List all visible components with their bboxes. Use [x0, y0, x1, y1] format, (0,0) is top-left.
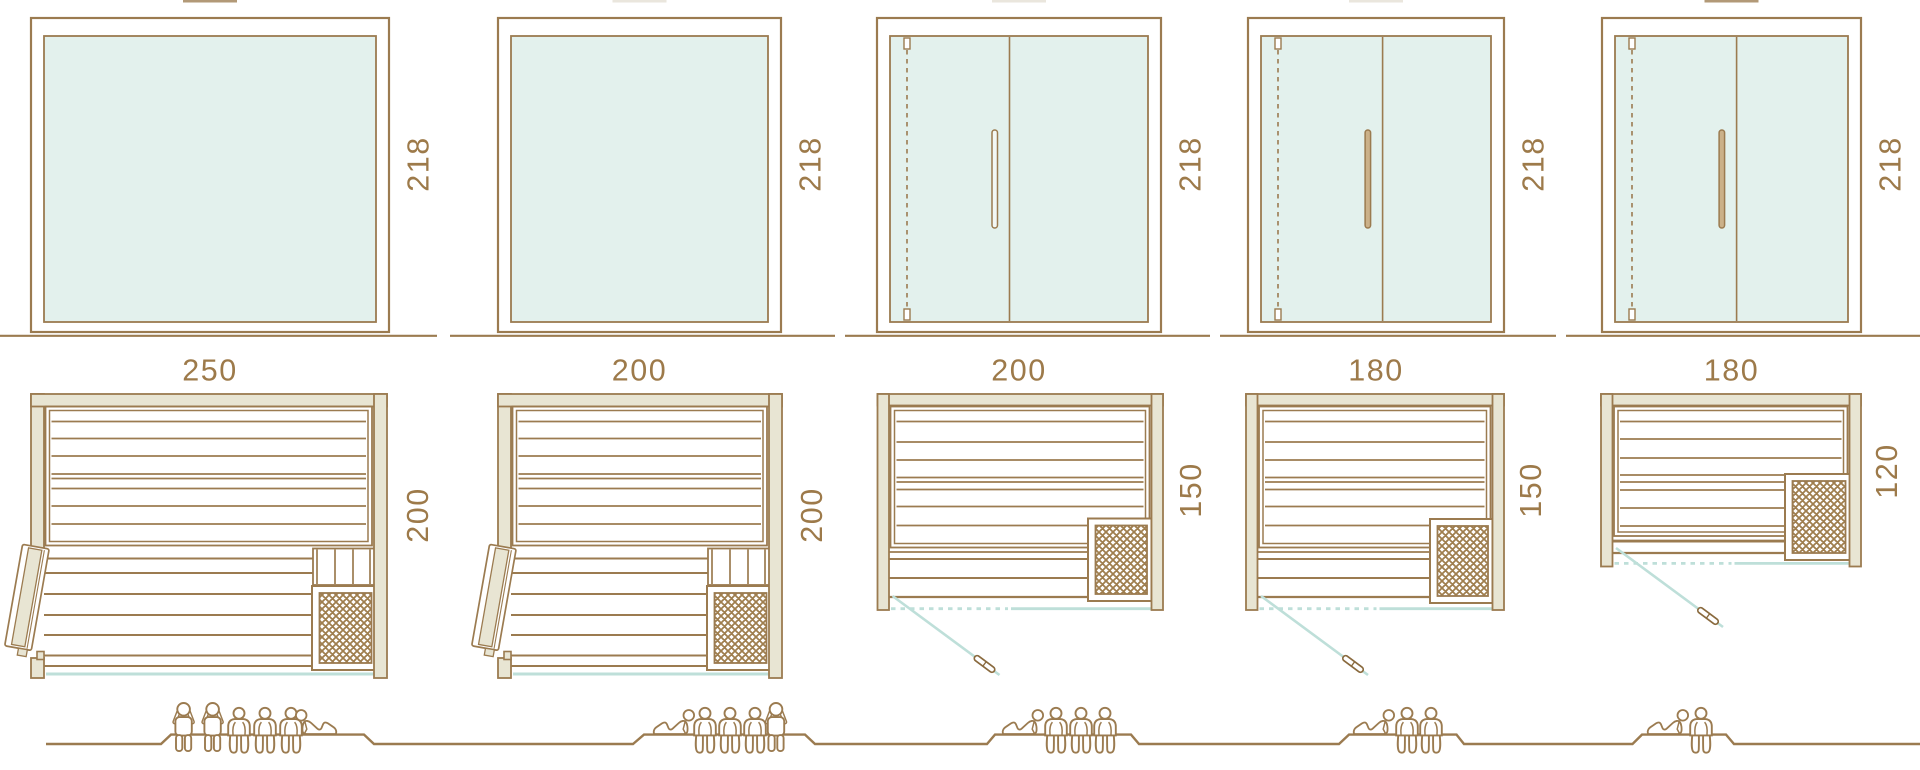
svg-text:218: 218 [794, 136, 828, 191]
svg-text:218: 218 [1874, 136, 1908, 191]
svg-text:218: 218 [1174, 136, 1208, 191]
svg-text:150: 150 [1174, 462, 1208, 517]
svg-text:150: 150 [1514, 462, 1548, 517]
svg-text:218: 218 [1517, 136, 1551, 191]
svg-text:200: 200 [991, 354, 1046, 388]
svg-text:200: 200 [401, 487, 435, 542]
svg-text:180: 180 [1704, 354, 1759, 388]
svg-text:200: 200 [612, 354, 667, 388]
svg-text:180: 180 [1348, 354, 1403, 388]
svg-text:200: 200 [795, 487, 829, 542]
svg-text:218: 218 [402, 136, 436, 191]
svg-text:250: 250 [182, 354, 237, 388]
svg-text:120: 120 [1870, 443, 1904, 498]
